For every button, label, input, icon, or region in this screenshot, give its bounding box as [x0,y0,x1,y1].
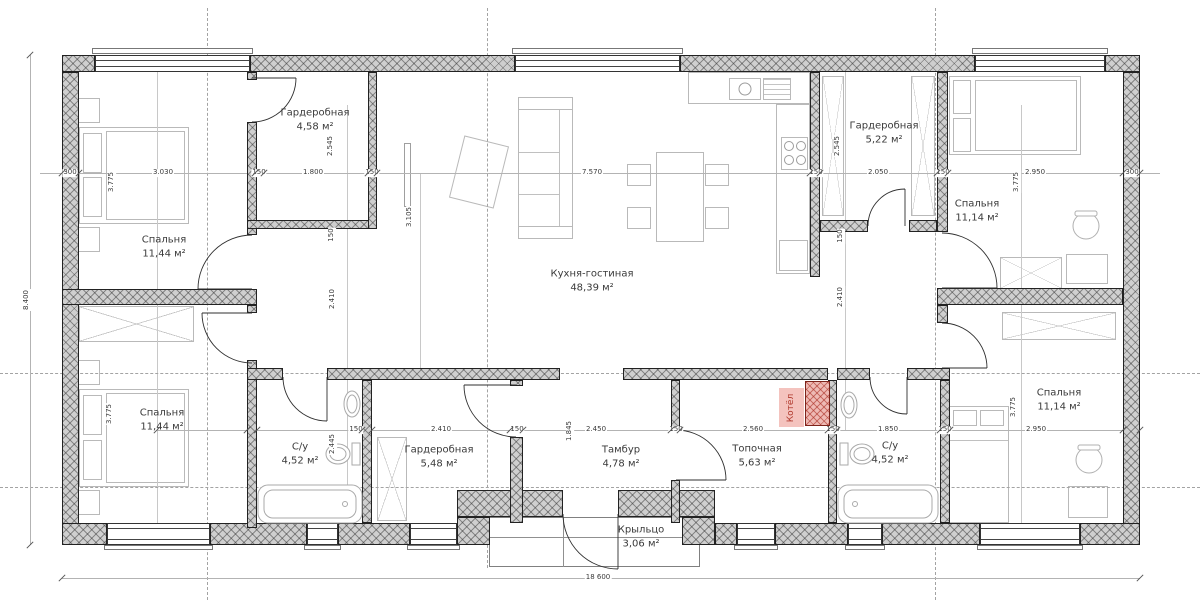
room-label-bath-bl: С/у4,52 м² [282,441,319,468]
window-sill [407,545,460,550]
wall-segment [937,305,948,323]
wall-segment [62,289,257,305]
chair [705,207,729,229]
wall-segment [1123,72,1140,545]
dim-label: 2.950 [1024,169,1046,177]
pillow [83,395,102,435]
window [107,523,210,545]
window [410,523,457,545]
room-label-wardrobe-tr: Гардеробная5,22 м² [850,120,919,147]
boiler-unit [805,381,830,426]
office-chairs [1073,211,1102,473]
wall-segment [837,368,870,380]
dim-label-total-width: 18 600 [585,574,612,582]
stove [781,137,808,170]
window [95,55,250,72]
room-label-boiler-room: Топочная5,63 м² [732,443,781,470]
wall-segment [362,380,372,523]
window-sill [92,48,253,54]
toilet-tank [352,443,360,465]
pillow [953,410,977,426]
dim-line-bottom [157,430,1140,431]
wall-segment [210,523,307,545]
pillow [953,80,971,114]
window-sill [304,545,341,550]
wall-segment [510,437,523,523]
wall-segment [510,380,523,386]
wall-segment [909,220,937,232]
dim-label: 150 [328,227,336,242]
nightstand [76,227,100,252]
dim-label: 3.775 [106,403,114,425]
nightstand [76,490,100,515]
pillow [83,177,102,217]
dim-tick [1136,574,1143,581]
room-label-wardrobe-bl: Гардеробная5,48 м² [405,444,474,471]
window-sill [104,545,213,550]
room-label-bedroom-tr: Спальня11,14 м² [955,198,1000,225]
bed-mattress [975,80,1077,151]
dim-label: 2.950 [1025,426,1047,434]
porch-step-line [489,537,700,538]
wall-segment [940,380,950,523]
dim-label: 7.570 [581,169,603,177]
room-label-kitchen: Кухня-гостиная48,39 м² [551,268,634,295]
pillow [980,410,1004,426]
room-label-bedroom-br: Спальня11,14 м² [1037,387,1082,414]
window [515,55,680,72]
wall-segment [247,360,257,528]
wall-segment [62,72,79,545]
wall-segment [338,523,410,545]
nightstand [76,98,100,123]
desk [1068,486,1108,518]
wall-segment [937,72,948,232]
wall-segment [247,122,257,235]
desk [1066,254,1108,284]
wall-segment [671,480,680,523]
wall-segment [250,55,515,72]
sink [841,392,857,418]
wall-segment [623,368,828,380]
window [980,523,1080,545]
dining-table [656,152,704,242]
dim-label: 2.445 [329,433,337,455]
bathtub [838,485,938,523]
wardrobe-cabinet [377,437,407,521]
window-sill [845,545,885,550]
sofa-back-line [559,110,560,226]
dim-label: 1.845 [566,420,574,442]
dim-label: 3.105 [406,206,414,228]
window-sill [972,48,1108,54]
sofa [518,97,573,239]
office-chair [1076,447,1102,473]
dim-label: 1.800 [302,169,324,177]
window-sill [512,48,683,54]
axis-vertical [935,8,936,600]
dim-label: 150 [837,228,845,243]
dim-label: 2.545 [834,135,842,157]
chair [705,164,729,186]
window [975,55,1105,72]
dim-label: 2.410 [837,286,845,308]
dim-label: 2.050 [867,169,889,177]
wall-segment [671,380,680,430]
porch-step-line [563,517,564,567]
wall-segment [682,517,715,545]
dim-label: 3.030 [152,169,174,177]
room-label-wardrobe-tl: Гардеробная4,58 м² [281,107,350,134]
wall-segment [907,368,950,380]
dim-guide [420,173,421,372]
blanket-line [950,440,1008,441]
dim-guide [1021,105,1022,523]
floor-plan: Котёл [0,0,1200,610]
sofa-armrest [518,97,573,110]
wall-segment [247,305,257,313]
wall-segment [775,523,848,545]
axis-horizontal [0,373,1200,374]
window-sill [977,545,1083,550]
wardrobe-cabinet [1000,257,1062,289]
dim-tick [26,541,33,548]
chair [627,164,651,186]
office-chair [1073,213,1099,239]
sink-drainer [763,78,791,100]
window [848,523,882,545]
wall-segment [368,72,377,229]
dim-label: 3.775 [1013,171,1021,193]
window [307,523,338,545]
wall-segment [247,368,283,380]
kitchen-sink [729,78,761,100]
wall-segment [618,490,715,517]
pillow [953,118,971,152]
wall-segment [247,72,257,80]
pillow [83,440,102,480]
boiler-label: Котёл [779,388,804,427]
wall-segment [937,288,1123,305]
wall-segment [1080,523,1140,545]
wall-segment [715,523,737,545]
toilet [850,444,874,464]
wall-segment [680,55,975,72]
door-swings [198,78,997,569]
armchair [449,135,509,208]
dim-label: 2.410 [329,288,337,310]
tv-panel [404,143,411,207]
room-label-bedroom-bl: Спальня11,44 м² [140,407,185,434]
wall-segment [62,523,107,545]
dim-label-total-height: 8.400 [23,289,31,311]
sofa-cushion-line [519,152,559,153]
dim-label: 2.410 [430,426,452,434]
wall-segment [327,368,560,380]
wall-segment [457,517,490,545]
axis-vertical [487,8,488,568]
wall-segment [882,523,980,545]
dim-label: 3.775 [108,171,116,193]
wall-segment [247,220,377,229]
pillow [83,133,102,173]
dim-label: 2.450 [585,426,607,434]
wardrobe-cabinet [79,306,194,342]
room-label-porch: Крыльцо3,06 м² [618,524,665,551]
window [737,523,775,545]
wardrobe-cabinet [1002,312,1116,340]
dim-label: 2.560 [742,426,764,434]
fridge [779,240,808,271]
dim-label: 3.775 [1010,396,1018,418]
room-label-bath-br: С/у4,52 м² [872,440,909,467]
window-sill [734,545,778,550]
room-label-tambour: Тамбур4,78 м² [602,444,640,471]
sofa-armrest [518,226,573,239]
chair [627,207,651,229]
porch-outline [489,517,700,567]
wall-segment [62,55,95,72]
dim-label: 1.850 [877,426,899,434]
bathtub [258,485,362,523]
wall-segment [1105,55,1140,72]
room-label-bedroom-tl: Спальня11,44 м² [142,234,187,261]
axis-horizontal [0,487,1200,488]
toilet-tank [840,443,848,465]
sofa-cushion-line [519,194,559,195]
dim-label: 2.545 [327,135,335,157]
